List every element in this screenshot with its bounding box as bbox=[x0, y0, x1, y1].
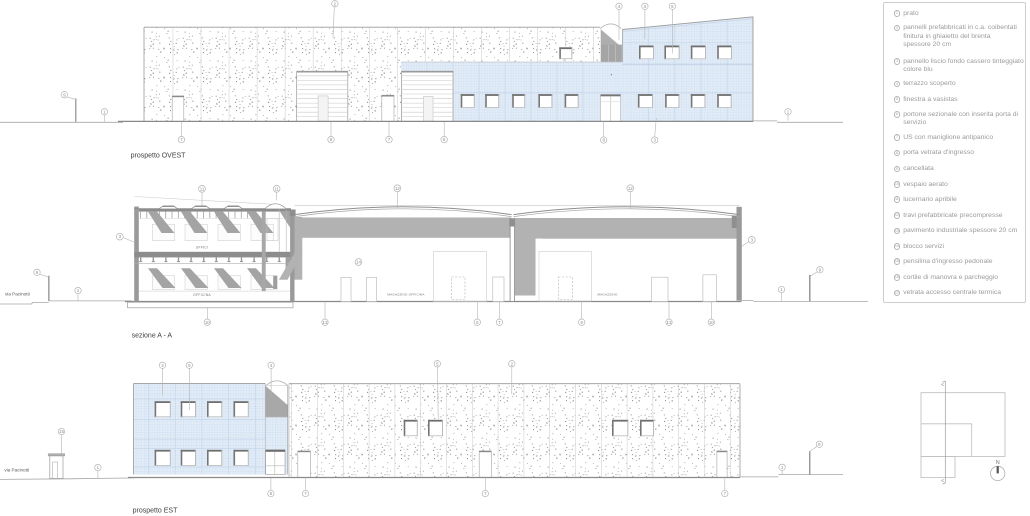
svg-text:15: 15 bbox=[59, 429, 64, 434]
svg-text:11: 11 bbox=[200, 186, 205, 191]
svg-text:via Pacinotti: via Pacinotti bbox=[4, 468, 29, 473]
svg-text:sezione A - A: sezione A - A bbox=[132, 333, 173, 340]
svg-text:11: 11 bbox=[274, 186, 279, 191]
svg-text:UFFICI: UFFICI bbox=[196, 246, 208, 250]
svg-text:14: 14 bbox=[356, 260, 361, 265]
svg-text:MAGAZZINO OFFICINA: MAGAZZINO OFFICINA bbox=[387, 292, 425, 296]
svg-text:via Pacinotti: via Pacinotti bbox=[5, 291, 30, 296]
svg-text:10: 10 bbox=[205, 320, 210, 325]
svg-text:prospetto EST: prospetto EST bbox=[133, 507, 178, 514]
svg-text:N: N bbox=[996, 460, 1000, 466]
svg-text:OFFICINA: OFFICINA bbox=[193, 293, 211, 297]
svg-text:10: 10 bbox=[709, 320, 714, 325]
svg-text:MAGAZZINO: MAGAZZINO bbox=[597, 292, 618, 296]
svg-text:13: 13 bbox=[323, 320, 328, 325]
svg-text:12: 12 bbox=[628, 186, 633, 191]
svg-text:prospetto OVEST: prospetto OVEST bbox=[131, 153, 187, 160]
svg-text:13: 13 bbox=[667, 320, 672, 325]
svg-text:12: 12 bbox=[395, 186, 400, 191]
